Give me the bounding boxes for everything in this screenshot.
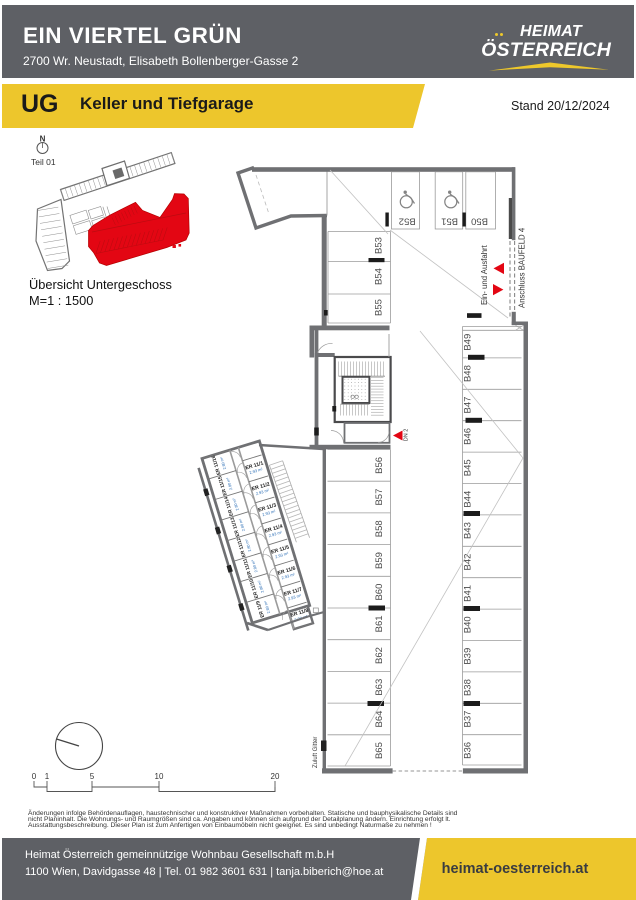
svg-text:B40: B40 bbox=[463, 616, 474, 633]
svg-text:N: N bbox=[40, 135, 46, 144]
svg-text:B37: B37 bbox=[463, 711, 474, 728]
svg-text:B56: B56 bbox=[374, 457, 385, 474]
svg-text:B65: B65 bbox=[374, 742, 385, 759]
svg-text:Ein- und Ausfahrt: Ein- und Ausfahrt bbox=[480, 244, 489, 305]
svg-text:B54: B54 bbox=[374, 268, 385, 285]
svg-text:B61: B61 bbox=[374, 615, 385, 632]
svg-text:B44: B44 bbox=[463, 491, 474, 508]
svg-text:B36: B36 bbox=[463, 742, 474, 759]
svg-text:B48: B48 bbox=[463, 365, 474, 382]
svg-text:B47: B47 bbox=[463, 397, 474, 414]
svg-text:5: 5 bbox=[90, 772, 95, 781]
svg-text:0: 0 bbox=[32, 772, 37, 781]
svg-text:B51: B51 bbox=[441, 216, 458, 227]
svg-text:B53: B53 bbox=[374, 237, 385, 254]
svg-text:B38: B38 bbox=[463, 679, 474, 696]
svg-text:B55: B55 bbox=[374, 299, 385, 316]
svg-text:B60: B60 bbox=[374, 584, 385, 601]
svg-text:B46: B46 bbox=[463, 428, 474, 445]
svg-text:B42: B42 bbox=[463, 554, 474, 571]
svg-text:B58: B58 bbox=[374, 520, 385, 537]
svg-text:1: 1 bbox=[45, 772, 50, 781]
svg-text:B52: B52 bbox=[399, 216, 416, 227]
svg-text:10: 10 bbox=[155, 772, 164, 781]
svg-text:Anschluss BAUFELD 4: Anschluss BAUFELD 4 bbox=[518, 227, 527, 308]
svg-text:B45: B45 bbox=[463, 459, 474, 476]
svg-text:Übersicht Untergeschoss: Übersicht Untergeschoss bbox=[29, 277, 172, 292]
svg-text:B39: B39 bbox=[463, 648, 474, 665]
svg-text:B50: B50 bbox=[471, 216, 488, 227]
svg-text:20: 20 bbox=[271, 772, 280, 781]
svg-text:B59: B59 bbox=[374, 552, 385, 569]
svg-text:Teil 01: Teil 01 bbox=[31, 157, 56, 167]
svg-text:B62: B62 bbox=[374, 647, 385, 664]
svg-text:DN 2: DN 2 bbox=[404, 429, 410, 442]
svg-text:B63: B63 bbox=[374, 679, 385, 696]
svg-text:B57: B57 bbox=[374, 489, 385, 506]
svg-text:B49: B49 bbox=[463, 334, 474, 351]
svg-text:M=1 : 1500: M=1 : 1500 bbox=[29, 293, 93, 308]
svg-text:Zuluft Gitter: Zuluft Gitter bbox=[313, 737, 319, 768]
svg-text:B41: B41 bbox=[463, 585, 474, 602]
svg-text:B43: B43 bbox=[463, 522, 474, 539]
